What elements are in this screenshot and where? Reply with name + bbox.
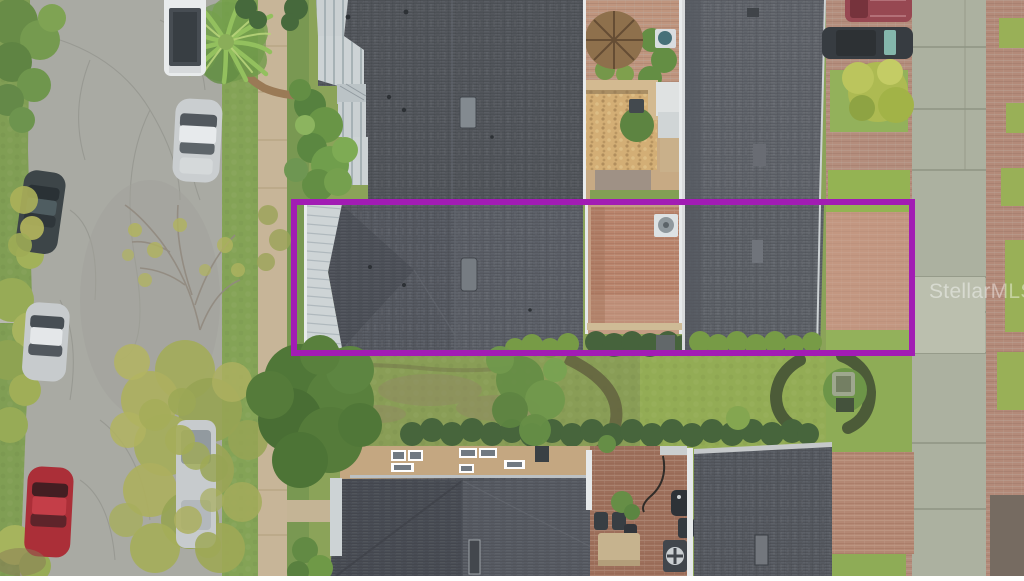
svg-text:StellarMLS: StellarMLS (929, 280, 1024, 303)
